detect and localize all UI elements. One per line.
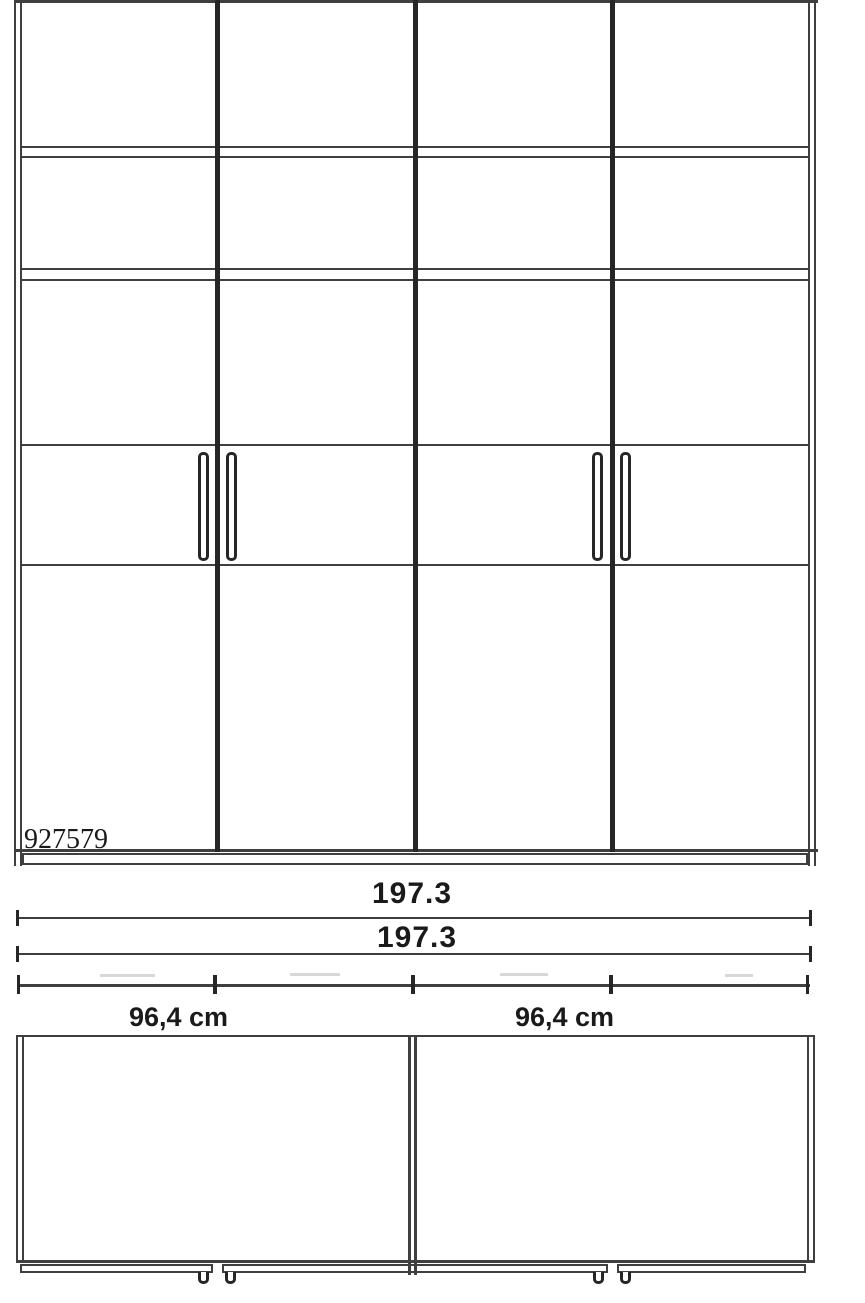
plan-left-edge-inner	[22, 1035, 24, 1263]
plan-handle-nub-1	[198, 1272, 209, 1284]
plan-door-strip-segment-3	[617, 1264, 806, 1273]
plan-right-edge-outer	[813, 1035, 815, 1263]
plan-handle-nub-3	[593, 1272, 604, 1284]
plan-top-view	[0, 0, 865, 1303]
plan-center-divider-left-line	[408, 1035, 411, 1275]
plan-handle-nub-4	[620, 1272, 631, 1284]
plan-door-strip-segment-1	[20, 1264, 213, 1273]
plan-right-edge-inner	[807, 1035, 809, 1263]
plan-left-edge-outer	[16, 1035, 18, 1263]
technical-drawing-canvas: 927579 197.3 197.3 96,4 cm 96,4 cm	[0, 0, 865, 1303]
plan-center-divider-right-line	[414, 1035, 417, 1275]
plan-handle-nub-2	[225, 1272, 236, 1284]
